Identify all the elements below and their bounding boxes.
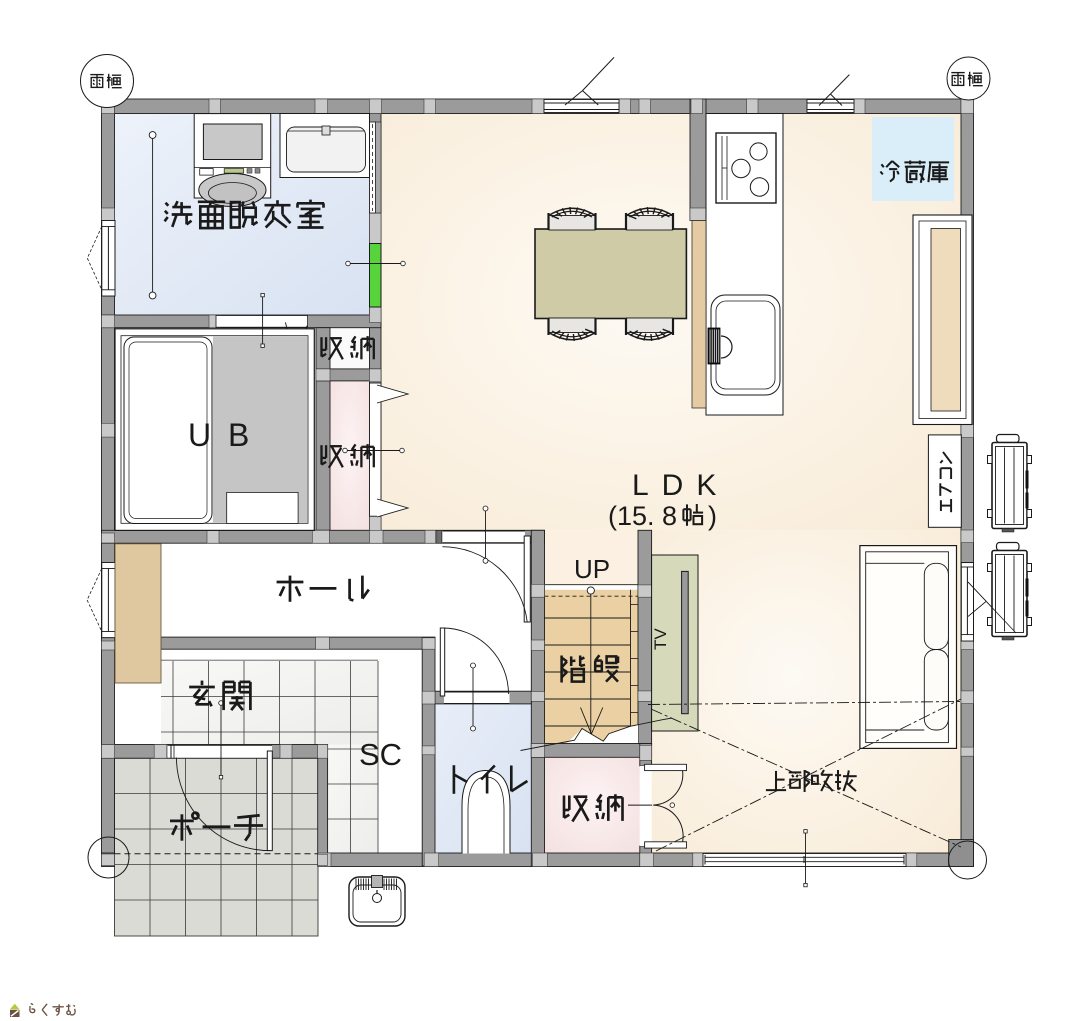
svg-text:TV: TV xyxy=(651,628,670,650)
svg-text:): ) xyxy=(708,501,717,531)
svg-text:(15. 8: (15. 8 xyxy=(608,501,677,531)
svg-text:UP: UP xyxy=(574,554,610,584)
svg-text:LDK: LDK xyxy=(632,469,729,502)
svg-text:U B: U B xyxy=(188,417,253,453)
svg-text:SC: SC xyxy=(359,737,402,772)
